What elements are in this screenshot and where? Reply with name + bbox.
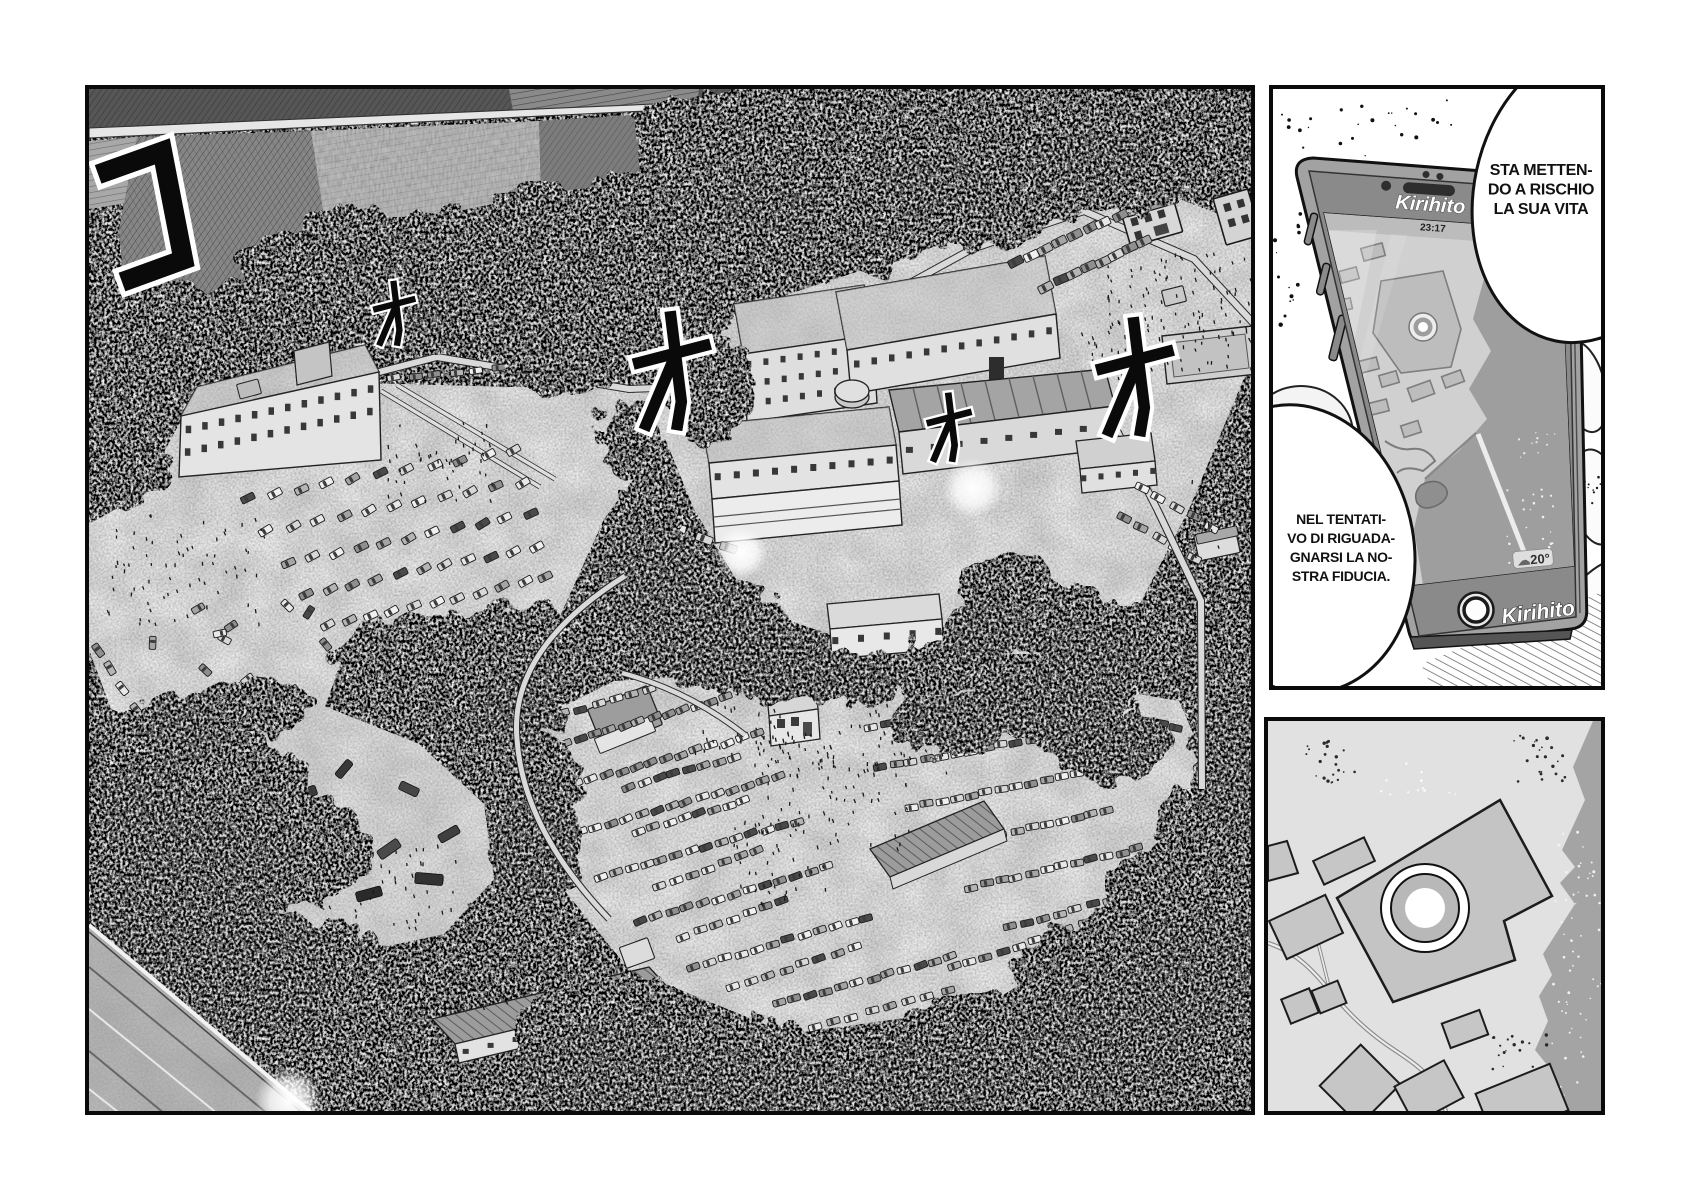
svg-text:STA METTEN-DO A RISCHIOLA SUA: STA METTEN-DO A RISCHIOLA SUA VITA [1488, 162, 1594, 218]
svg-text:☁20°: ☁20° [1517, 551, 1551, 569]
svg-text:23:17: 23:17 [1420, 222, 1447, 235]
